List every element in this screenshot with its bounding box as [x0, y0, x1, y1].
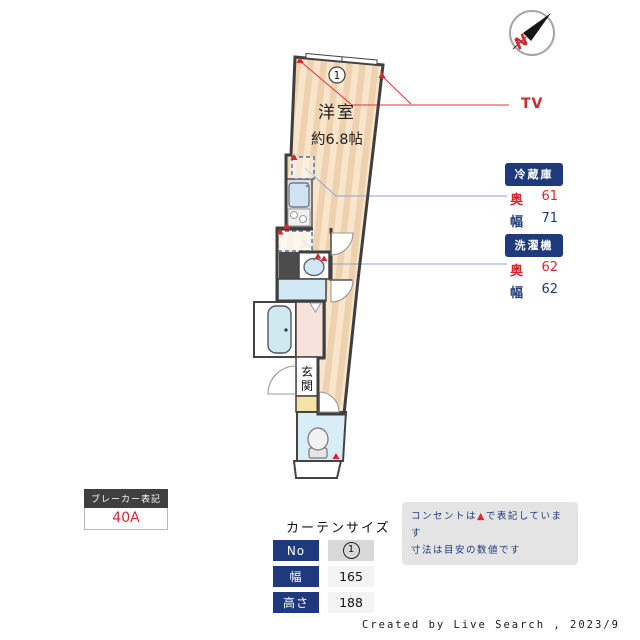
washer-panel: 洗濯機 奥 62 幅 62 [505, 234, 563, 301]
footer-credit: Created by Live Search , 2023/9 [362, 619, 620, 631]
fridge-panel: 冷蔵庫 奥 61 幅 71 [505, 163, 563, 230]
washbasin-icon [299, 252, 329, 279]
curtain-row-height: 高さ 188 [273, 592, 374, 613]
washer-width-label: 幅 [510, 282, 523, 301]
breaker-box: ブレーカー表記 40A [84, 489, 168, 530]
curtain-row-no-label: No [273, 540, 319, 561]
curtain-row-width: 幅 165 [273, 566, 374, 587]
notes-box: コンセントは▲で表記しています 寸法は目安の数値です [402, 502, 578, 565]
washer-width-row: 幅 62 [505, 282, 563, 301]
curtain-circled-number: 1 [343, 542, 360, 559]
curtain-row-width-label: 幅 [273, 566, 319, 587]
washer-depth-value: 62 [541, 260, 558, 279]
bathroom [254, 302, 296, 357]
fridge-width-row: 幅 71 [505, 211, 563, 230]
floorplan-page: 1 洋室 約6.8帖 玄 関 N TV 冷蔵庫 奥 61 幅 71 洗濯機 [0, 0, 640, 640]
toilet-icon [308, 428, 328, 458]
tv-label: TV [521, 96, 543, 112]
washer-depth-label: 奥 [510, 260, 523, 279]
washer-width-value: 62 [541, 282, 558, 301]
fridge-depth-label: 奥 [510, 189, 523, 208]
fridge-depth-row: 奥 61 [505, 189, 563, 208]
curtain-row-no: No 1 [273, 540, 374, 561]
pipe-shaft [279, 252, 299, 279]
fridge-width-label: 幅 [510, 211, 523, 230]
note-line-1: コンセントは▲で表記しています [411, 508, 569, 542]
breaker-value: 40A [84, 508, 168, 530]
outlet-legend-triangle: ▲ [477, 511, 486, 522]
curtain-row-height-value: 188 [328, 592, 374, 613]
fridge-depth-value: 61 [541, 189, 558, 208]
porch [294, 461, 341, 478]
washer-title-badge: 洗濯機 [505, 234, 563, 257]
fridge-width-value: 71 [541, 211, 558, 230]
stove-icon [288, 209, 310, 226]
room-size-label: 約6.8帖 [311, 131, 363, 148]
curtain-row-height-label: 高さ [273, 592, 319, 613]
toilet-room [297, 412, 346, 461]
kitchen-unit [286, 179, 312, 227]
curtain-title: カーテンサイズ [286, 517, 391, 536]
washer-depth-row: 奥 62 [505, 260, 563, 279]
breaker-title: ブレーカー表記 [84, 489, 168, 508]
room-number-marker: 1 [329, 67, 345, 83]
room-label: 洋室 [318, 103, 356, 123]
fridge-title-badge: 冷蔵庫 [505, 163, 563, 186]
curtain-row-no-value: 1 [328, 540, 374, 561]
compass-icon: N [510, 11, 554, 55]
entrance-label-char1: 玄 [301, 364, 313, 379]
shower-room [296, 302, 325, 357]
washroom-floor [278, 279, 326, 301]
room-number: 1 [334, 70, 341, 82]
entrance-label-char2: 関 [301, 379, 313, 393]
entry-tile [296, 396, 318, 412]
note-line-2: 寸法は目安の数値です [411, 542, 569, 559]
curtain-row-width-value: 165 [328, 566, 374, 587]
curtain-table: No 1 幅 165 高さ 188 [273, 540, 374, 613]
bathtub-icon [268, 306, 291, 353]
fridge-space [292, 157, 314, 179]
